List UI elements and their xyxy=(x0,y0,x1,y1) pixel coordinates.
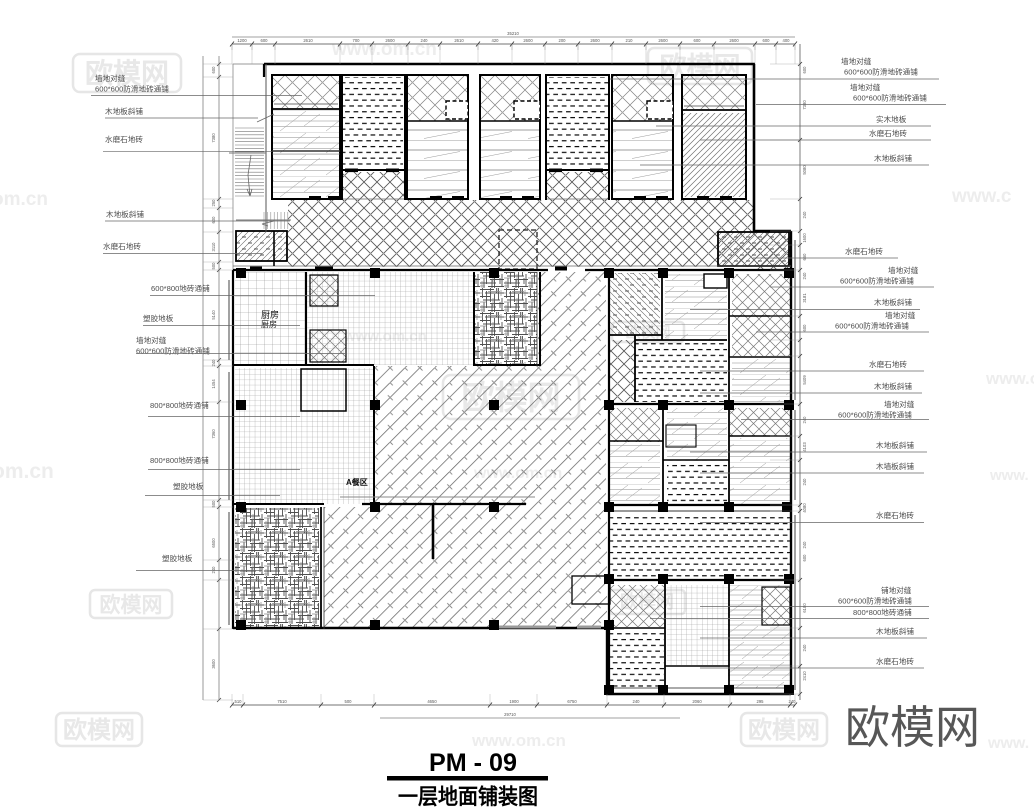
svg-text:210: 210 xyxy=(626,38,634,43)
svg-text:5080: 5080 xyxy=(802,165,807,175)
svg-text:4080: 4080 xyxy=(802,503,807,513)
svg-text:水磨石地砖: 水磨石地砖 xyxy=(876,510,914,520)
svg-text:240: 240 xyxy=(633,699,641,704)
svg-text:水磨石地砖: 水磨石地砖 xyxy=(845,246,883,256)
svg-text:厨房: 厨房 xyxy=(261,309,279,320)
svg-text:240: 240 xyxy=(802,644,807,652)
svg-text:1600: 1600 xyxy=(802,233,807,243)
svg-text:500: 500 xyxy=(211,262,216,270)
svg-text:实木地板: 实木地板 xyxy=(876,114,907,124)
svg-text:木地板斜铺: 木地板斜铺 xyxy=(876,440,914,450)
svg-text:3181: 3181 xyxy=(802,293,807,303)
svg-text:墙地对缝: 墙地对缝 xyxy=(95,73,126,83)
svg-text:3600: 3600 xyxy=(211,659,216,669)
svg-text:水磨石地砖: 水磨石地砖 xyxy=(103,241,141,251)
svg-text:1200: 1200 xyxy=(237,38,247,43)
svg-text:600*600防滑地砖通铺: 600*600防滑地砖通铺 xyxy=(838,596,912,606)
svg-text:6500: 6500 xyxy=(211,538,216,548)
svg-text:1900: 1900 xyxy=(509,699,519,704)
svg-text:墙地对缝: 墙地对缝 xyxy=(885,310,916,320)
svg-text:4650: 4650 xyxy=(427,699,437,704)
svg-text:塑胶地板: 塑胶地板 xyxy=(173,481,204,491)
svg-text:600*600防滑地砖通铺: 600*600防滑地砖通铺 xyxy=(835,321,909,331)
svg-text:510: 510 xyxy=(235,699,243,704)
svg-text:400: 400 xyxy=(783,38,791,43)
svg-text:PM - 09: PM - 09 xyxy=(429,749,517,777)
svg-text:铺地对缝: 铺地对缝 xyxy=(881,585,912,595)
svg-text:欧模网: 欧模网 xyxy=(63,716,135,744)
svg-text:600: 600 xyxy=(211,66,216,74)
svg-text:800*800地砖通铺: 800*800地砖通铺 xyxy=(150,400,209,410)
svg-text:塑胶地板: 塑胶地板 xyxy=(162,553,193,563)
svg-text:2600: 2600 xyxy=(590,38,600,43)
svg-text:水磨石地砖: 水磨石地砖 xyxy=(869,359,907,369)
svg-text:240: 240 xyxy=(211,359,216,367)
svg-text:5140: 5140 xyxy=(211,310,216,320)
svg-text:240: 240 xyxy=(802,541,807,549)
svg-text:240: 240 xyxy=(802,478,807,486)
svg-text:240: 240 xyxy=(802,211,807,219)
svg-text:6750: 6750 xyxy=(567,699,577,704)
svg-text:1454: 1454 xyxy=(211,379,216,389)
svg-text:2600: 2600 xyxy=(729,38,739,43)
svg-text:650: 650 xyxy=(802,253,807,261)
svg-text:www.o: www.o xyxy=(985,369,1034,388)
svg-text:3110: 3110 xyxy=(211,242,216,252)
svg-text:木地板斜铺: 木地板斜铺 xyxy=(874,297,912,307)
svg-text:水磨石地砖: 水磨石地砖 xyxy=(869,128,907,138)
svg-text:www.: www. xyxy=(987,735,1029,752)
svg-text:29710: 29710 xyxy=(504,712,516,717)
svg-text:600: 600 xyxy=(261,38,269,43)
svg-text:600: 600 xyxy=(802,66,807,74)
svg-text:600*600防滑地砖通铺: 600*600防滑地砖通铺 xyxy=(95,84,169,94)
svg-text:水磨石地砖: 水磨石地砖 xyxy=(105,134,143,144)
svg-text:240: 240 xyxy=(802,272,807,280)
svg-text:om.cn: om.cn xyxy=(0,460,54,483)
svg-text:600*800地砖通铺: 600*800地砖通铺 xyxy=(151,283,210,293)
svg-text:500: 500 xyxy=(345,699,353,704)
svg-text:欧模网: 欧模网 xyxy=(845,702,980,753)
svg-text:墙地对缝: 墙地对缝 xyxy=(850,82,881,92)
svg-text:600: 600 xyxy=(802,324,807,332)
svg-text:墙地对缝: 墙地对缝 xyxy=(888,265,919,275)
svg-text:墙地对缝: 墙地对缝 xyxy=(884,399,915,409)
svg-text:600*600防滑地砖通铺: 600*600防滑地砖通铺 xyxy=(136,346,210,356)
svg-text:墙地对缝: 墙地对缝 xyxy=(841,56,872,66)
svg-text:A餐区: A餐区 xyxy=(346,477,368,487)
svg-text:www.om.cn: www.om.cn xyxy=(471,731,566,750)
svg-text:一层地面铺装图: 一层地面铺装图 xyxy=(398,785,538,809)
svg-text:600*600防滑地砖通铺: 600*600防滑地砖通铺 xyxy=(838,410,912,420)
svg-text:木地板斜铺: 木地板斜铺 xyxy=(105,106,143,116)
svg-text:600: 600 xyxy=(211,216,216,224)
svg-text:800*800地砖通铺: 800*800地砖通铺 xyxy=(853,607,912,617)
svg-text:600: 600 xyxy=(694,38,702,43)
svg-text:2600: 2600 xyxy=(385,38,395,43)
svg-text:6180: 6180 xyxy=(802,603,807,613)
svg-text:800*800地砖通铺: 800*800地砖通铺 xyxy=(150,455,209,465)
svg-text:木地板斜铺: 木地板斜铺 xyxy=(874,153,912,163)
svg-text:2610: 2610 xyxy=(454,38,464,43)
svg-text:420: 420 xyxy=(492,38,500,43)
svg-text:厨房: 厨房 xyxy=(261,319,277,329)
svg-text:240: 240 xyxy=(211,566,216,574)
svg-text:700: 700 xyxy=(353,38,361,43)
svg-text:240: 240 xyxy=(421,38,429,43)
svg-text:4103: 4103 xyxy=(802,442,807,452)
svg-text:欧模网: 欧模网 xyxy=(748,716,820,744)
svg-text:600*600防滑地砖通铺: 600*600防滑地砖通铺 xyxy=(853,93,927,103)
svg-text:2060: 2060 xyxy=(692,699,702,704)
svg-text:木墙板斜铺: 木墙板斜铺 xyxy=(876,461,914,471)
svg-text:7510: 7510 xyxy=(277,699,287,704)
svg-text:木地板斜铺: 木地板斜铺 xyxy=(874,381,912,391)
svg-text:水磨石地砖: 水磨石地砖 xyxy=(876,656,914,666)
svg-text:墙地对缝: 墙地对缝 xyxy=(136,335,167,345)
svg-text:2600: 2600 xyxy=(523,38,533,43)
svg-text:200: 200 xyxy=(559,38,567,43)
svg-text:7380: 7380 xyxy=(211,133,216,143)
svg-text:2600: 2600 xyxy=(658,38,668,43)
svg-text:欧模网: 欧模网 xyxy=(100,593,163,617)
svg-text:500: 500 xyxy=(211,500,216,508)
svg-text:om.cn: om.cn xyxy=(0,189,48,210)
svg-text:7360: 7360 xyxy=(211,429,216,439)
svg-text:600: 600 xyxy=(802,554,807,562)
svg-text:www.c: www.c xyxy=(951,186,1012,207)
svg-text:5409: 5409 xyxy=(802,375,807,385)
svg-text:600*600防滑地砖通铺: 600*600防滑地砖通铺 xyxy=(844,67,918,77)
svg-text:600: 600 xyxy=(763,38,771,43)
svg-text:295: 295 xyxy=(757,699,765,704)
svg-text:www.: www. xyxy=(989,467,1029,484)
svg-text:塑胶地板: 塑胶地板 xyxy=(143,313,174,323)
svg-text:2410: 2410 xyxy=(802,671,807,681)
svg-text:250: 250 xyxy=(211,199,216,207)
svg-text:2610: 2610 xyxy=(303,38,313,43)
svg-text:木地板斜铺: 木地板斜铺 xyxy=(106,209,144,219)
svg-text:600*600防滑地砖通铺: 600*600防滑地砖通铺 xyxy=(840,276,914,286)
svg-text:木地板斜铺: 木地板斜铺 xyxy=(876,626,914,636)
svg-text:35210: 35210 xyxy=(507,31,519,36)
